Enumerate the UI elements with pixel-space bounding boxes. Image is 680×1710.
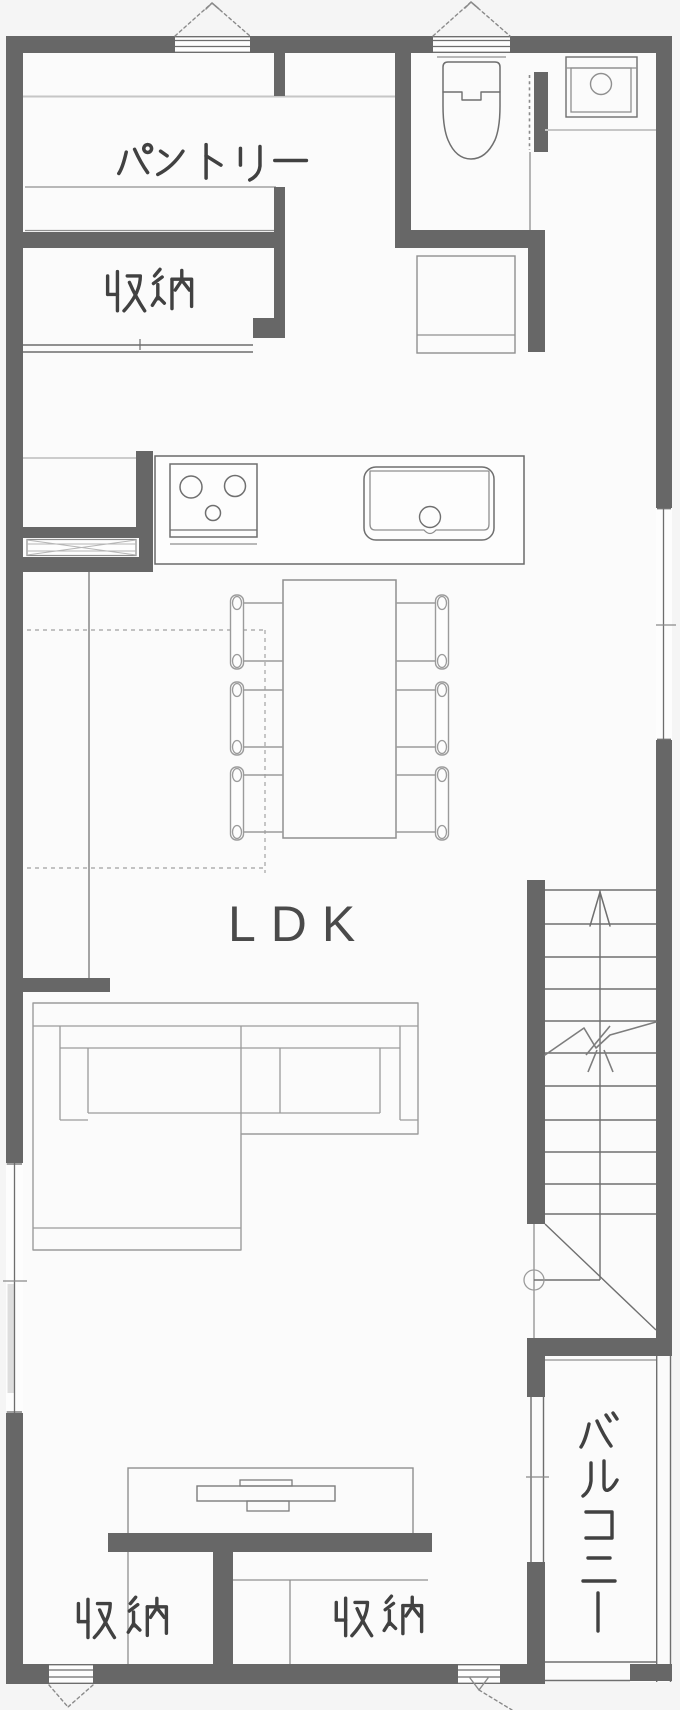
svg-text:LDK: LDK xyxy=(228,896,370,952)
